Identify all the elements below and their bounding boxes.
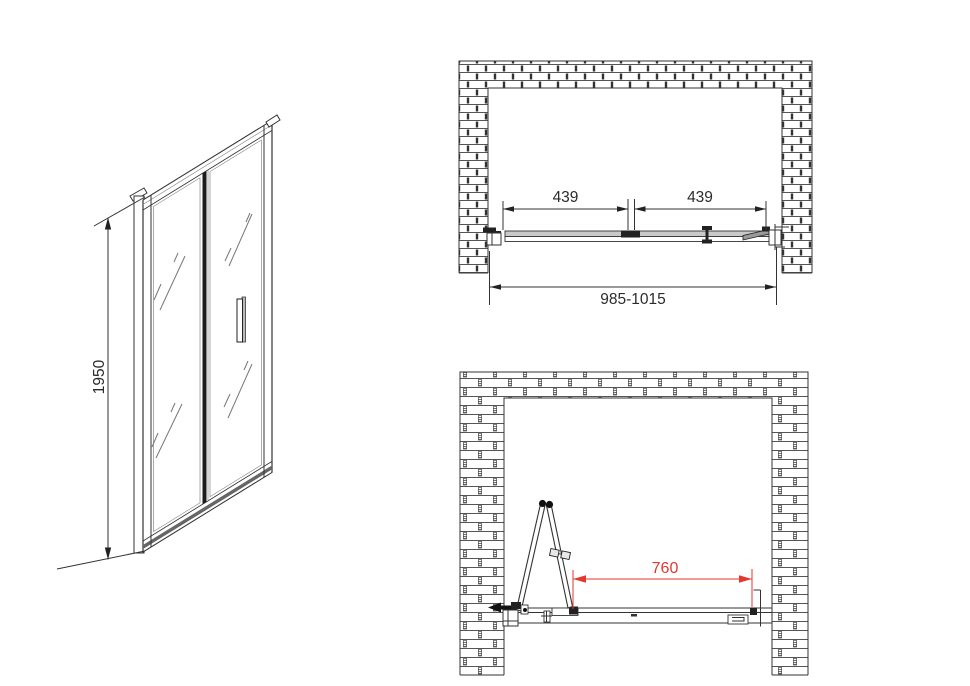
hinge-knuckle-icon [546,501,553,508]
plan-open-rail [488,590,772,627]
shower-door-technical-drawing: 1950 [0,0,970,686]
overall-width-dimension: 985-1015 [490,247,777,308]
height-dimension: 1950 [57,197,145,569]
plan-view-open: 760 [460,372,808,675]
door-handle [237,297,246,342]
plan-closed-rail [483,224,789,250]
hinge-knuckle-icon [539,500,546,507]
height-dimension-label: 1950 [91,359,108,394]
centre-connector [621,231,640,238]
dim-439-left-label: 439 [553,189,579,206]
plan-open-walls [460,372,808,675]
meeting-stile [203,171,207,504]
panel-width-dimensions: 439 439 [503,189,766,230]
front-view-frame [143,120,272,552]
red-arrow-left-icon [573,575,586,583]
front-view: 1950 [57,115,280,569]
dim-439-right-label: 439 [687,189,713,206]
clear-opening-label: 760 [652,560,679,577]
plan-view-closed: 439 439 985-1015 [459,61,812,308]
rail-centre-mark [631,614,637,617]
overall-width-label: 985-1015 [600,291,666,308]
red-arrow-right-icon [739,575,752,583]
frame-top-cap [266,115,280,127]
folded-door [511,500,573,614]
technical-drawing-page: 1950 [0,0,970,686]
